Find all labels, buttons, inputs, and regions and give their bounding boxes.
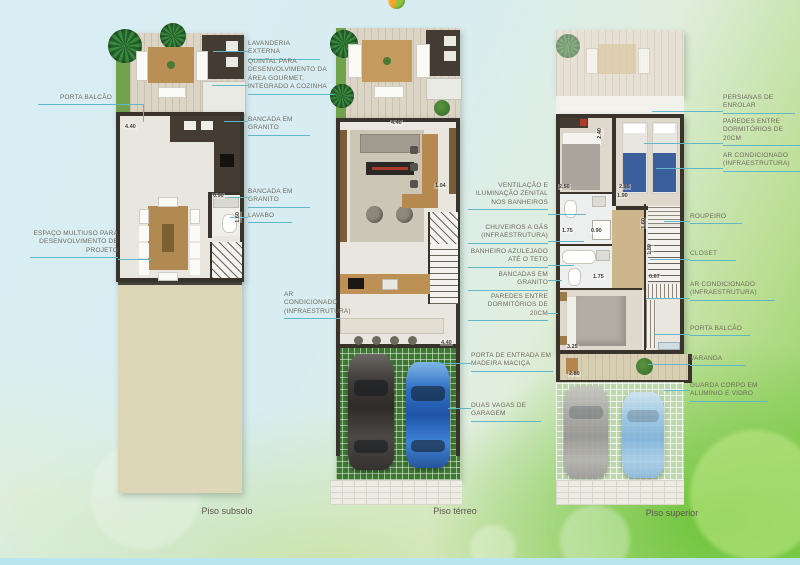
callout-ar-condicionado-bottom: AR CONDICIONADO (INFRAESTRUTURA) [690,281,775,301]
bathroom-2 [560,246,612,288]
washer-dryer-icon [226,41,238,51]
dim-label: 1.80 [646,244,654,255]
sink-icon [596,250,610,261]
garage-wall [336,348,340,456]
dim-label: 0.90 [212,193,225,199]
callout-espaco-multiuso: ESPAÇO MULTIUSO PARA DESENVOLVIMENTO DE … [30,230,118,258]
callout-porta-balcao-superior: PORTA BALCÃO [690,325,750,336]
dim-label: 2.95 [618,184,631,190]
callout-chuveiros-gas: CHUVEIROS A GÁS (INFRAESTRUTURA) [468,224,548,244]
car-blue-faded [622,392,664,478]
leader-line [664,221,690,222]
callout-persianas: PERSIANAS DE ENROLAR [723,94,795,114]
callout-roupeiro: ROUPEIRO [690,213,742,224]
windshield [354,380,388,396]
dim-label: 4.40 [440,340,453,346]
bed-pillow [624,124,645,133]
car-gray-faded [564,386,608,478]
callout-lavabo: LAVABO [248,212,292,223]
callout-duas-vagas: DUAS VAGAS DE GARAGEM [471,402,541,422]
bed-blanket [653,153,676,192]
bathroom-1 [560,194,612,244]
bottom-edge-strip [0,558,800,565]
decor-item [580,119,587,126]
laundry-sink-area [426,78,462,100]
brand-logo-icon [388,0,405,9]
dim-label: 0.90 [590,228,603,234]
dim-label: 1.60 [640,218,648,229]
terreo-garage [336,348,460,480]
sink-icon [592,196,606,207]
dim-label: 1.75 [561,228,574,234]
subsolo-quintal-deck [116,33,244,115]
callout-ar-condicionado-terreo: AR CONDICIONADO (INFRAESTRUTURA) [284,291,340,319]
superior-roof-band [556,96,684,115]
terreo-main-floor [336,118,460,348]
outdoor-sofa-faded [586,48,598,74]
dim-label: 1.60 [234,212,242,223]
cooktop-icon [348,278,364,289]
dim-label: 1.04 [434,183,447,189]
leader-line [228,197,248,198]
washer-dryer-icon [444,36,456,46]
tv-console [366,162,414,175]
stairs [210,242,242,278]
outdoor-sofa [374,86,404,98]
dining-chair-top [158,197,178,207]
gourmet-table-faded [598,44,636,74]
superior-garage-below [556,382,684,480]
leader-line [548,265,574,266]
laundry-room [426,30,460,76]
windshield [627,410,659,422]
caption-piso-terreo: Piso térreo [400,506,510,516]
bokeh-circle [690,430,800,560]
closet [648,284,680,298]
callout-ventilacao-zenital: VENTILAÇÃO E ILUMINAÇÃO ZENITAL NOS BANH… [468,182,548,210]
leader-line [548,313,558,314]
laundry-sink-area [202,81,246,115]
rear-window [411,440,445,452]
leader-line [112,104,144,105]
toilet-icon [564,200,577,218]
callout-bancadas-granito: BANCADAS EM GRANITO [468,271,548,291]
leader-line [548,241,584,242]
callout-ar-condicionado-top: AR CONDICIONADO (INFRAESTRUTURA) [723,152,800,172]
palm-tree-icon [556,34,580,58]
varanda [556,354,692,383]
callout-quintal-gourmet: QUINTAL PARA DESENVOLVIMENTO DA ÁREA GOU… [248,58,334,95]
terreo-quintal-deck [336,28,460,118]
master-bedroom [560,290,642,350]
armchair [366,206,383,223]
stove-icon [220,154,234,167]
table-runner [162,224,174,252]
dining-table [148,206,188,270]
leader-line [213,51,248,52]
caption-piso-subsolo: Piso subsolo [172,506,282,516]
callout-paredes-dormitorios-right: PAREDES ENTRE DORMITÓRIOS DE 20CM [723,118,800,146]
subsolo-main-floor [116,112,244,282]
toilet-icon [568,268,581,286]
sink-icon [382,279,398,290]
gourmet-table [148,47,194,83]
shrub-icon [434,100,450,116]
island-counter [340,318,444,334]
dim-label: 1.75 [592,274,605,280]
stairs-lower [428,244,458,304]
leader-line [212,85,248,86]
palm-tree-icon [160,23,186,49]
wall-shelf [340,130,347,242]
bed-pillow [654,124,675,133]
bar-stools [410,146,418,154]
dining-chairs-left [139,209,149,224]
dim-label: 0.67 [648,274,661,280]
garage-wall [456,348,460,456]
gourmet-table [362,40,412,82]
dim-label: 4.40 [390,120,403,126]
leader-line [656,168,723,169]
dim-label: 2.50 [558,184,571,190]
outdoor-sofa [196,51,208,81]
callout-banheiro-azulejado: BANHEIRO AZULEJADO ATÉ O TETO [468,248,548,268]
dining-chairs-right [190,209,200,224]
terreo-driveway [330,480,462,505]
balcony-door [658,342,680,350]
callout-lavanderia-externa: LAVANDERIA EXTERNA [248,40,320,60]
dim-label: 1.90 [616,193,629,199]
caption-piso-superior: Piso superior [617,508,727,518]
dim-label: 2.80 [568,371,581,377]
windshield [569,406,603,419]
leader-line [448,408,471,409]
sink-cooktop-icon [184,121,196,130]
stairs-upper [428,212,458,244]
leader-line [652,111,723,112]
kitchen-counter-side [214,142,240,194]
rear-window [354,440,388,453]
bed-blanket [576,296,626,346]
leader-line [648,364,690,365]
wardrobe [560,118,588,128]
ac-infrastructure-area [646,300,656,348]
leader-line [654,334,690,335]
wall-shelf [449,128,456,194]
callout-varanda: VARANDA [690,355,745,366]
counter-stools [354,336,363,345]
windshield [411,386,445,401]
callout-paredes-dormitorios-mid: PAREDES ENTRE DORMITÓRIOS DE 20CM [468,293,548,321]
leader-line [436,363,471,364]
kitchen-counter [340,274,430,294]
bar-counter [402,194,438,208]
dining-chair-bottom [158,272,178,281]
car-dark [348,354,394,470]
kitchen-counter [170,116,240,142]
nightstand [560,292,567,301]
callout-closet: CLOSET [690,250,736,261]
leader-line [118,259,152,260]
laundry-room [202,35,244,79]
car-blue [406,362,450,468]
outdoor-sofa [416,44,430,78]
callout-bancada-granito-1: BANCADA EM GRANITO [248,116,310,136]
callout-porta-balcao-subsolo: PORTA BALCÃO [38,94,112,105]
superior-paving [556,480,684,505]
leader-line [646,298,690,299]
superior-roof-view [556,30,684,96]
single-bed [652,122,678,194]
leader-line [548,280,562,281]
superior-main-floor [556,114,684,354]
callout-guarda-corpo: GUARDA CORPO EM ALUMÍNIO E VIDRO [690,382,768,402]
outdoor-sofa [158,87,186,98]
outdoor-sofa [348,44,362,78]
leader-line [224,121,248,122]
dim-label: 2.40 [596,128,604,139]
outdoor-sofa-faded [638,48,650,74]
outdoor-sofa [136,51,148,81]
espaco-multiuso-room [118,282,242,493]
floorplan-brochure-page: PORTA BALCÃO ESPAÇO MULTIUSO PARA DESENV… [0,0,800,565]
leader-line [644,143,723,144]
callout-bancada-granito-2: BANCADA EM GRANITO [248,188,310,208]
callout-porta-entrada: PORTA DE ENTRADA EM MADEIRA MACIÇA [471,352,553,372]
leader-line [548,214,586,215]
plant-icon [636,358,653,375]
armchair [396,206,413,223]
fireplace-accent [372,167,408,170]
leader-line [143,104,144,122]
leader-line [664,390,690,391]
dim-label: 4.40 [124,124,137,130]
leader-line [650,259,690,260]
bathtub-icon [562,250,596,264]
dim-label: 3.25 [566,344,579,350]
